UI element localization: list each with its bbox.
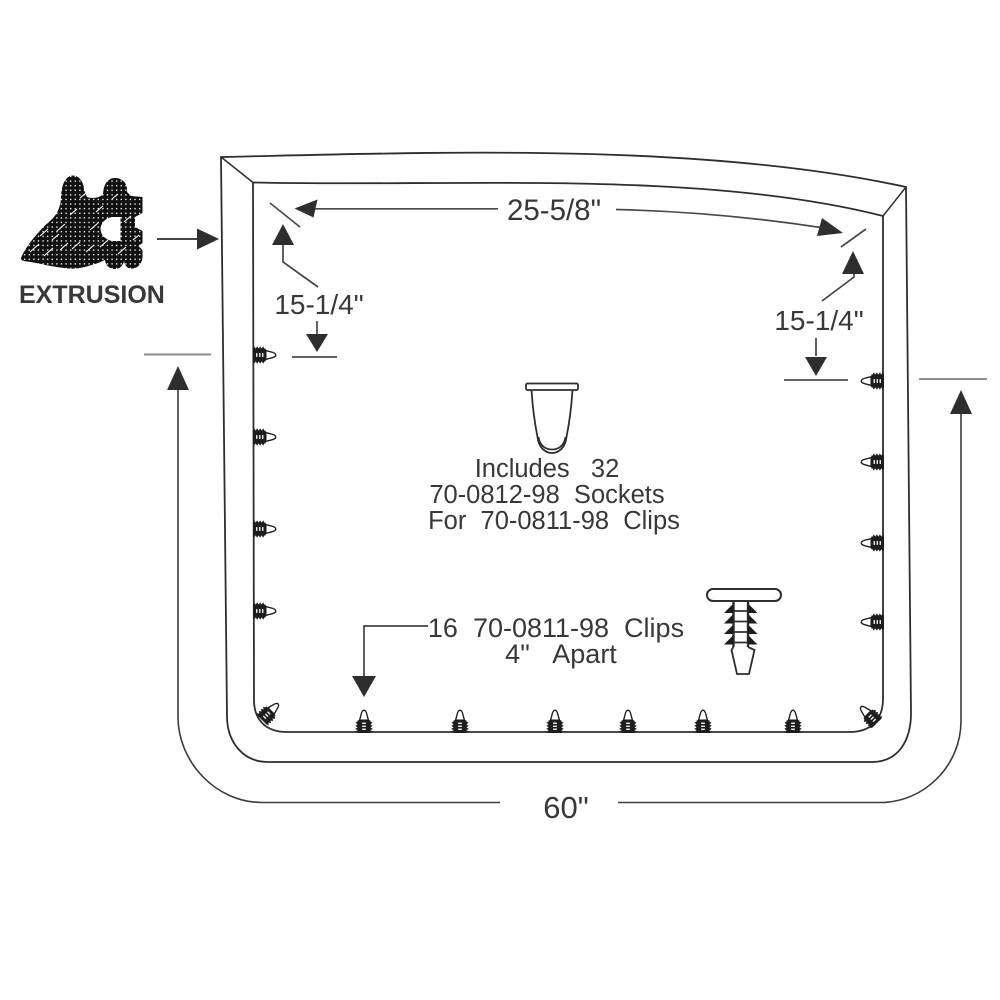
- svg-text:15-1/4": 15-1/4": [774, 305, 863, 336]
- svg-text:25-5/8": 25-5/8": [507, 194, 601, 227]
- svg-text:4" Apart: 4" Apart: [505, 639, 617, 669]
- svg-text:EXTRUSION: EXTRUSION: [19, 281, 165, 309]
- svg-text:15-1/4": 15-1/4": [274, 289, 363, 320]
- svg-text:60": 60": [543, 790, 589, 825]
- svg-text:70-0812-98 Sockets: 70-0812-98 Sockets: [429, 481, 664, 509]
- svg-text:Includes 32: Includes 32: [475, 455, 620, 483]
- svg-text:For 70-0811-98 Clips: For 70-0811-98 Clips: [428, 507, 680, 535]
